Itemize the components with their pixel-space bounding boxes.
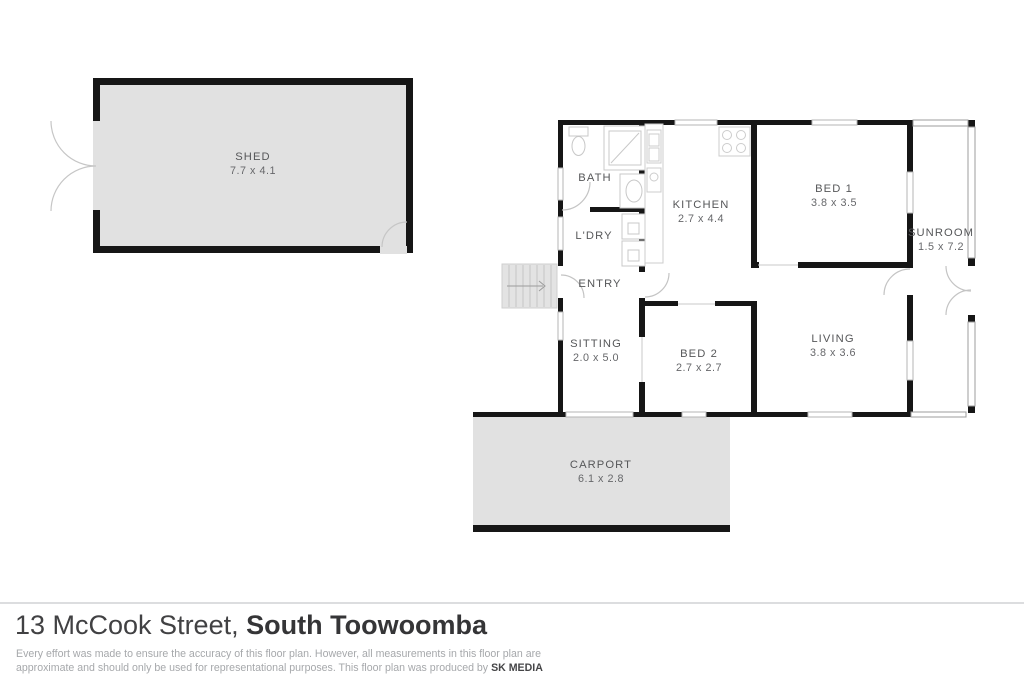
carport-slab [473, 417, 730, 526]
room-label-sunroom: SUNROOM [908, 227, 974, 239]
dryer-door [628, 250, 639, 261]
burner [737, 131, 746, 140]
room-dims-bed2: 2.7 x 2.7 [676, 362, 722, 374]
room-label-shed: SHED [235, 151, 270, 163]
shed-door-gap [380, 246, 407, 254]
shed: SHED 7.7 x 4.1 [51, 82, 410, 255]
address-suburb: South Toowoomba [246, 610, 487, 640]
footer: 13 McCook Street, South Toowoomba Every … [0, 600, 1024, 683]
producer-name: SK MEDIA [491, 662, 543, 674]
entry-stairs [502, 264, 557, 308]
room-dims-sunroom: 1.5 x 7.2 [918, 241, 964, 253]
vanity-basin [626, 180, 642, 202]
carport-front-wall [473, 525, 730, 532]
room-dims-bed1: 3.8 x 3.5 [811, 197, 857, 209]
washer-door [628, 223, 639, 234]
room-dims-kitchen: 2.7 x 4.4 [678, 213, 724, 225]
disclaimer: Every effort was made to ensure the accu… [16, 648, 556, 675]
burner [723, 131, 732, 140]
sink-bowl [649, 134, 659, 146]
room-label-bath: BATH [578, 172, 611, 184]
room-label-kitchen: KITCHEN [673, 199, 730, 211]
room-label-ldry: L'DRY [575, 230, 612, 242]
disclaimer-line1: Every effort was made to ensure the accu… [16, 648, 541, 660]
room-label-bed1: BED 1 [815, 183, 853, 195]
sunroom-glass-walls [911, 120, 975, 417]
floorplan-page: SHED 7.7 x 4.1 CARPORT 6.1 x 2.8 [0, 0, 1024, 683]
room-label-bed2: BED 2 [680, 348, 718, 360]
bench-tap [650, 173, 658, 181]
carport: CARPORT 6.1 x 2.8 [473, 417, 730, 532]
burner [737, 144, 746, 153]
room-dims-carport: 6.1 x 2.8 [578, 473, 624, 485]
floor-plan: SHED 7.7 x 4.1 CARPORT 6.1 x 2.8 [0, 0, 1024, 600]
room-dims-sitting: 2.0 x 5.0 [573, 352, 619, 364]
disclaimer-line2: approximate and should only be used for … [16, 662, 491, 674]
room-dims-shed: 7.7 x 4.1 [230, 165, 276, 177]
room-label-carport: CARPORT [570, 459, 632, 471]
address-street: 13 McCook Street, [15, 610, 246, 640]
footer-divider-line [0, 602, 1024, 604]
toilet-bowl [572, 137, 585, 156]
burner [723, 144, 732, 153]
bath-fixtures [569, 126, 648, 208]
room-label-living: LIVING [811, 333, 854, 345]
room-label-sitting: SITTING [570, 338, 622, 350]
toilet-tank [569, 127, 588, 136]
sink-bowl [649, 148, 659, 161]
room-label-entry: ENTRY [578, 278, 621, 290]
address: 13 McCook Street, South Toowoomba [15, 610, 487, 641]
room-dims-living: 3.8 x 3.6 [810, 347, 856, 359]
kitchen-fixtures [645, 124, 750, 263]
